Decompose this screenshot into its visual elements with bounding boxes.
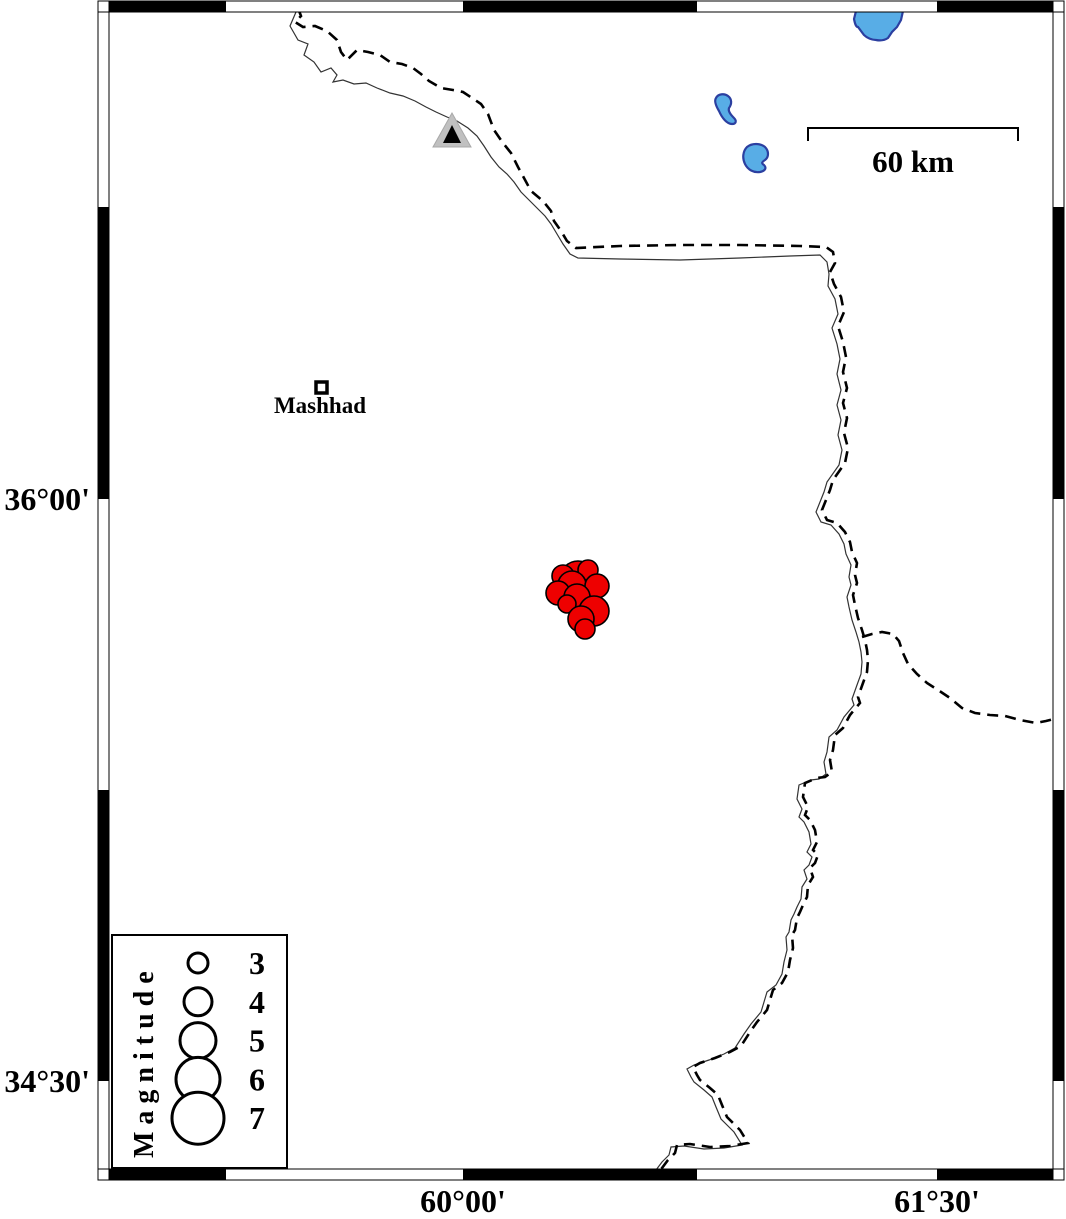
frame-corner [98, 1, 109, 12]
legend-magnitude-label: 3 [249, 945, 265, 981]
scale-bar-label: 60 km [872, 144, 954, 179]
legend-title: Magnitude [129, 964, 160, 1158]
map-canvas: Mashhad 60 km 36°00' 34°30' 60°00' 61°30… [0, 0, 1066, 1219]
frame-black-segment [1053, 790, 1064, 1081]
longitude-label-61-30: 61°30' [894, 1183, 980, 1219]
latitude-label-34-30: 34°30' [4, 1063, 90, 1099]
legend-magnitude-circle [180, 1023, 216, 1059]
frame-black-segment [1053, 207, 1064, 499]
frame-corner [98, 1169, 109, 1180]
earthquake-marker [575, 619, 595, 639]
legend-magnitude-label: 4 [249, 984, 265, 1020]
lake-small-lower [743, 144, 768, 172]
legend-magnitude-label: 7 [249, 1100, 265, 1136]
legend-magnitude-circle [172, 1092, 224, 1144]
longitude-label-60-00: 60°00' [420, 1183, 506, 1219]
legend-magnitude-circle [188, 953, 208, 973]
frame-black-segment [98, 790, 109, 1081]
frame-black-segment [109, 1, 226, 12]
frame-corner [1053, 1, 1064, 12]
city-marker-square [316, 382, 327, 393]
frame-black-segment [98, 207, 109, 499]
frame-black-segment [109, 1169, 226, 1180]
latitude-label-36-00: 36°00' [4, 481, 90, 517]
frame-corner [1053, 1169, 1064, 1180]
frame-black-segment [463, 1, 697, 12]
frame-black-segment [937, 1, 1053, 12]
legend-magnitude-circle [184, 988, 212, 1016]
legend-magnitude-label: 6 [249, 1061, 265, 1097]
map-page: Mashhad 60 km 36°00' 34°30' 60°00' 61°30… [0, 0, 1066, 1219]
frame-black-segment [937, 1169, 1053, 1180]
legend-magnitude-label: 5 [249, 1023, 265, 1059]
magnitude-legend: Magnitude 34567 [112, 935, 287, 1168]
city-label: Mashhad [274, 393, 366, 418]
frame-black-segment [463, 1169, 697, 1180]
